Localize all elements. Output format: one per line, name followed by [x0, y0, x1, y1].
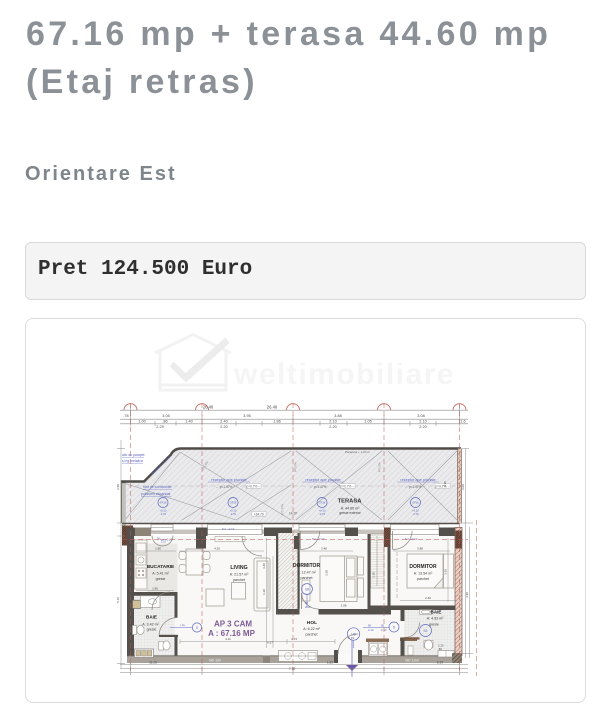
svg-text:3.88: 3.88 — [417, 547, 423, 551]
svg-text:GF1b: GF1b — [319, 501, 326, 505]
svg-text:+0.10: +0.10 — [160, 509, 167, 513]
svg-text:fw= +2.10: fw= +2.10 — [312, 537, 325, 541]
svg-text:A: 6.22 m²: A: 6.22 m² — [303, 627, 320, 631]
svg-text:GF1b: GF1b — [412, 501, 419, 505]
svg-text:rost de constructie: rost de constructie — [143, 485, 172, 489]
svg-text:DORMITOR: DORMITOR — [293, 563, 321, 569]
svg-text:A: 4.53 m²: A: 4.53 m² — [427, 617, 444, 621]
svg-text:p=0.7%→: p=0.7%→ — [246, 484, 260, 488]
svg-text:1.80: 1.80 — [152, 587, 158, 591]
svg-text:-2.70: -2.70 — [230, 512, 237, 516]
svg-text:1.73: 1.73 — [348, 636, 354, 640]
svg-text:HOL: HOL — [307, 620, 317, 626]
svg-text:1.40: 1.40 — [185, 420, 192, 424]
svg-text:3.00: 3.00 — [461, 484, 465, 490]
svg-text:11.26: 11.26 — [149, 661, 157, 665]
svg-text:2.10: 2.10 — [305, 605, 311, 609]
svg-text:.78: .78 — [123, 414, 128, 418]
svg-text:GF16: GF16 — [160, 501, 167, 505]
svg-text:p=1.5%: p=1.5% — [293, 462, 297, 472]
svg-text:2.20: 2.20 — [419, 425, 426, 429]
svg-text:si rig metalica: si rig metalica — [122, 459, 143, 463]
svg-text:LIVING: LIVING — [230, 565, 247, 571]
svg-text:14.2P: 14.2P — [289, 512, 297, 516]
svg-text:2.20: 2.20 — [220, 425, 227, 429]
svg-text:7.70: 7.70 — [289, 667, 295, 671]
svg-text:-2.70: -2.70 — [412, 512, 419, 516]
svg-text:receptor ape pluviale: receptor ape pluviale — [211, 478, 246, 482]
svg-text:← p=1.47%: ← p=1.47% — [310, 485, 327, 489]
svg-text:p=0.7%→: p=0.7%→ — [340, 484, 354, 488]
svg-text:1.20: 1.20 — [262, 589, 266, 595]
svg-text:3.48: 3.48 — [321, 547, 327, 551]
svg-text:S2: S2 — [424, 629, 428, 633]
svg-text:26.40: 26.40 — [203, 405, 214, 410]
svg-text:2.40: 2.40 — [425, 596, 431, 600]
svg-text:gresie: gresie — [429, 623, 439, 627]
svg-text:A: 3.42 m²: A: 3.42 m² — [142, 623, 159, 627]
svg-text:1.6: 1.6 — [460, 420, 465, 424]
svg-text:90: 90 — [368, 624, 372, 628]
svg-text:+0.10: +0.10 — [230, 509, 237, 513]
svg-text:1.00: 1.00 — [138, 420, 145, 424]
svg-text:parchet: parchet — [306, 633, 318, 637]
svg-text:4.11: 4.11 — [225, 637, 231, 641]
svg-text:3.88: 3.88 — [334, 414, 341, 418]
svg-text:1.80: 1.80 — [155, 547, 161, 551]
svg-text:+0.10: +0.10 — [412, 509, 419, 513]
svg-text:parchet: parchet — [417, 577, 429, 581]
svg-text:atic du parapet: atic du parapet — [122, 453, 144, 457]
svg-text:+24.70: +24.70 — [254, 512, 264, 516]
svg-text:A: 44.60 m²: A: 44.60 m² — [341, 507, 360, 511]
svg-text:← p=1.47%: ← p=1.47% — [405, 485, 422, 489]
svg-text:A: 13.54 m²: A: 13.54 m² — [414, 572, 433, 576]
svg-text:gresie: gresie — [156, 577, 166, 581]
svg-text:4.90: 4.90 — [465, 592, 469, 598]
svg-text:GF16: GF16 — [230, 501, 237, 505]
svg-text:parchet: parchet — [301, 576, 313, 580]
svg-text:1.05: 1.05 — [364, 420, 371, 424]
svg-text:weltimobiliare: weltimobiliare — [233, 358, 455, 391]
svg-text:polistiren expandat: polistiren expandat — [141, 492, 170, 496]
svg-text:S: S — [196, 626, 198, 630]
svg-text:-2.70: -2.70 — [160, 512, 167, 516]
svg-text:1.82: 1.82 — [327, 661, 333, 665]
svg-text:6.19: 6.19 — [437, 661, 443, 665]
svg-text:.86: .86 — [162, 420, 167, 424]
svg-text:AP 3 CAM: AP 3 CAM — [214, 620, 252, 629]
svg-text:+0.10: +0.10 — [319, 509, 326, 513]
svg-text:A: 21.57 m²: A: 21.57 m² — [230, 573, 249, 577]
svg-text:TERASA: TERASA — [338, 499, 363, 505]
svg-text:6.57: 6.57 — [267, 641, 273, 645]
svg-text:fw= +2.10: fw= +2.10 — [405, 537, 418, 541]
svg-text:≥ fw: ≥ fw — [180, 623, 185, 627]
svg-text:3.05: 3.05 — [162, 414, 169, 418]
svg-text:2.98: 2.98 — [116, 484, 120, 490]
svg-text:gresie exterior: gresie exterior — [339, 511, 361, 515]
svg-text:A: 12.47 m²: A: 12.47 m² — [297, 571, 316, 575]
svg-text:3.60: 3.60 — [444, 569, 448, 575]
svg-text:1.86: 1.86 — [273, 420, 280, 424]
svg-text:p=1.77%: p=1.77% — [280, 503, 284, 515]
svg-text:parchet: parchet — [233, 578, 245, 582]
svg-text:Parapeta + 1.00 m: Parapeta + 1.00 m — [345, 450, 370, 454]
svg-text:4.20: 4.20 — [214, 547, 220, 551]
svg-text:U8: U8 — [305, 588, 309, 592]
svg-text:2.10: 2.10 — [419, 420, 426, 424]
svg-text:3.95: 3.95 — [243, 414, 250, 418]
svg-text:receptor ape pluviale: receptor ape pluviale — [305, 478, 340, 482]
svg-text:BAIE: BAIE — [431, 610, 442, 615]
svg-text:1.73: 1.73 — [291, 637, 297, 641]
svg-text:gresie: gresie — [147, 628, 157, 632]
svg-text:-2.70: -2.70 — [319, 512, 326, 516]
svg-text:BAIE: BAIE — [146, 615, 157, 620]
svg-text:MD 1100: MD 1100 — [405, 659, 419, 663]
svg-text:2.29: 2.29 — [156, 425, 163, 429]
svg-text:A : 67.16 MP: A : 67.16 MP — [208, 629, 255, 638]
svg-text:2.10: 2.10 — [368, 628, 374, 632]
svg-text:fw= +2.10: fw= +2.10 — [222, 527, 235, 531]
svg-text:receptor ape pluviale: receptor ape pluviale — [400, 478, 435, 482]
svg-text:80: 80 — [381, 624, 385, 628]
svg-text:p=1.5%: p=1.5% — [377, 462, 381, 472]
svg-text:← p=1.47%: ← p=1.47% — [216, 485, 233, 489]
svg-text:2.20: 2.20 — [329, 425, 336, 429]
svg-text:1.20: 1.20 — [372, 572, 376, 578]
svg-text:DORMITOR: DORMITOR — [409, 564, 437, 570]
svg-text:2.40: 2.40 — [220, 420, 227, 424]
svg-text:MD 180: MD 180 — [209, 659, 221, 663]
svg-text:3.28: 3.28 — [325, 570, 329, 576]
svg-text:3.08: 3.08 — [417, 414, 424, 418]
svg-text:.80: .80 — [438, 647, 442, 651]
svg-text:3.40: 3.40 — [262, 563, 266, 569]
svg-text:26.40: 26.40 — [267, 405, 278, 410]
svg-text:BUCATARIE: BUCATARIE — [147, 564, 175, 570]
svg-text:2.10: 2.10 — [329, 420, 336, 424]
svg-text:A: 5.41 m²: A: 5.41 m² — [152, 572, 169, 576]
svg-text:3.38: 3.38 — [443, 481, 447, 487]
svg-text:5.10: 5.10 — [116, 597, 120, 603]
svg-text:2.08: 2.08 — [341, 604, 347, 608]
